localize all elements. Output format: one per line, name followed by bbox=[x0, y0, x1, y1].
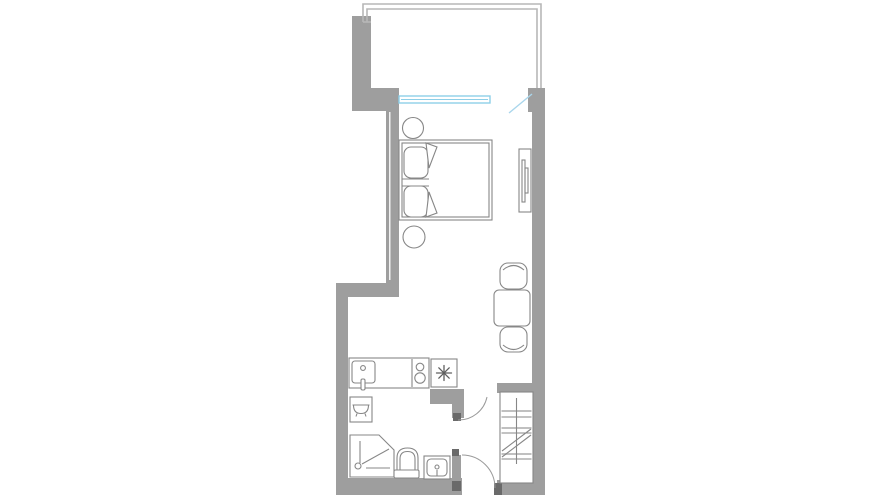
door-hinge-block-entry bbox=[452, 481, 461, 491]
balcony-left-pier-wall bbox=[352, 16, 371, 97]
wall-end-block bbox=[452, 449, 459, 456]
lower-left-wall bbox=[336, 283, 348, 495]
snowflake-icon bbox=[437, 366, 452, 381]
dining-set bbox=[494, 263, 530, 352]
kitchen-hall-wall bbox=[430, 389, 454, 404]
entry-door-swing bbox=[462, 455, 495, 488]
bathroom-bottom-wall bbox=[336, 478, 462, 495]
right-wall bbox=[532, 88, 545, 495]
round-nightstand-top bbox=[403, 118, 424, 139]
shower-drain bbox=[355, 463, 361, 469]
dining-chair-bottom bbox=[500, 327, 527, 352]
railing-inner-line bbox=[367, 9, 537, 88]
railing-outer-line bbox=[363, 4, 541, 88]
kitchenette bbox=[349, 358, 457, 390]
hall-lower-wall-stub bbox=[452, 455, 461, 482]
pillow-bottom bbox=[404, 186, 428, 217]
bathroom bbox=[350, 397, 450, 479]
floor-plan-canvas bbox=[0, 0, 880, 495]
wall-joint-line bbox=[389, 112, 391, 280]
dining-table bbox=[494, 290, 530, 326]
dining-chair-top bbox=[500, 263, 527, 289]
double-bed bbox=[399, 140, 492, 220]
balcony-opening bbox=[399, 94, 532, 113]
shower-enclosure bbox=[350, 435, 394, 477]
bedroom-left-wall bbox=[386, 96, 399, 297]
sink-tap bbox=[361, 379, 365, 390]
toilet-cistern bbox=[394, 470, 419, 478]
wall-mounted-tv bbox=[519, 149, 531, 212]
pillow-top bbox=[404, 147, 428, 178]
round-nightstand-bottom bbox=[403, 226, 425, 248]
balcony-railing bbox=[363, 4, 541, 88]
bathtub-cabinet bbox=[350, 397, 372, 422]
floor-plan-page bbox=[0, 0, 880, 495]
staircase bbox=[500, 392, 533, 483]
toilet bbox=[394, 448, 419, 478]
washbasin bbox=[424, 456, 450, 479]
